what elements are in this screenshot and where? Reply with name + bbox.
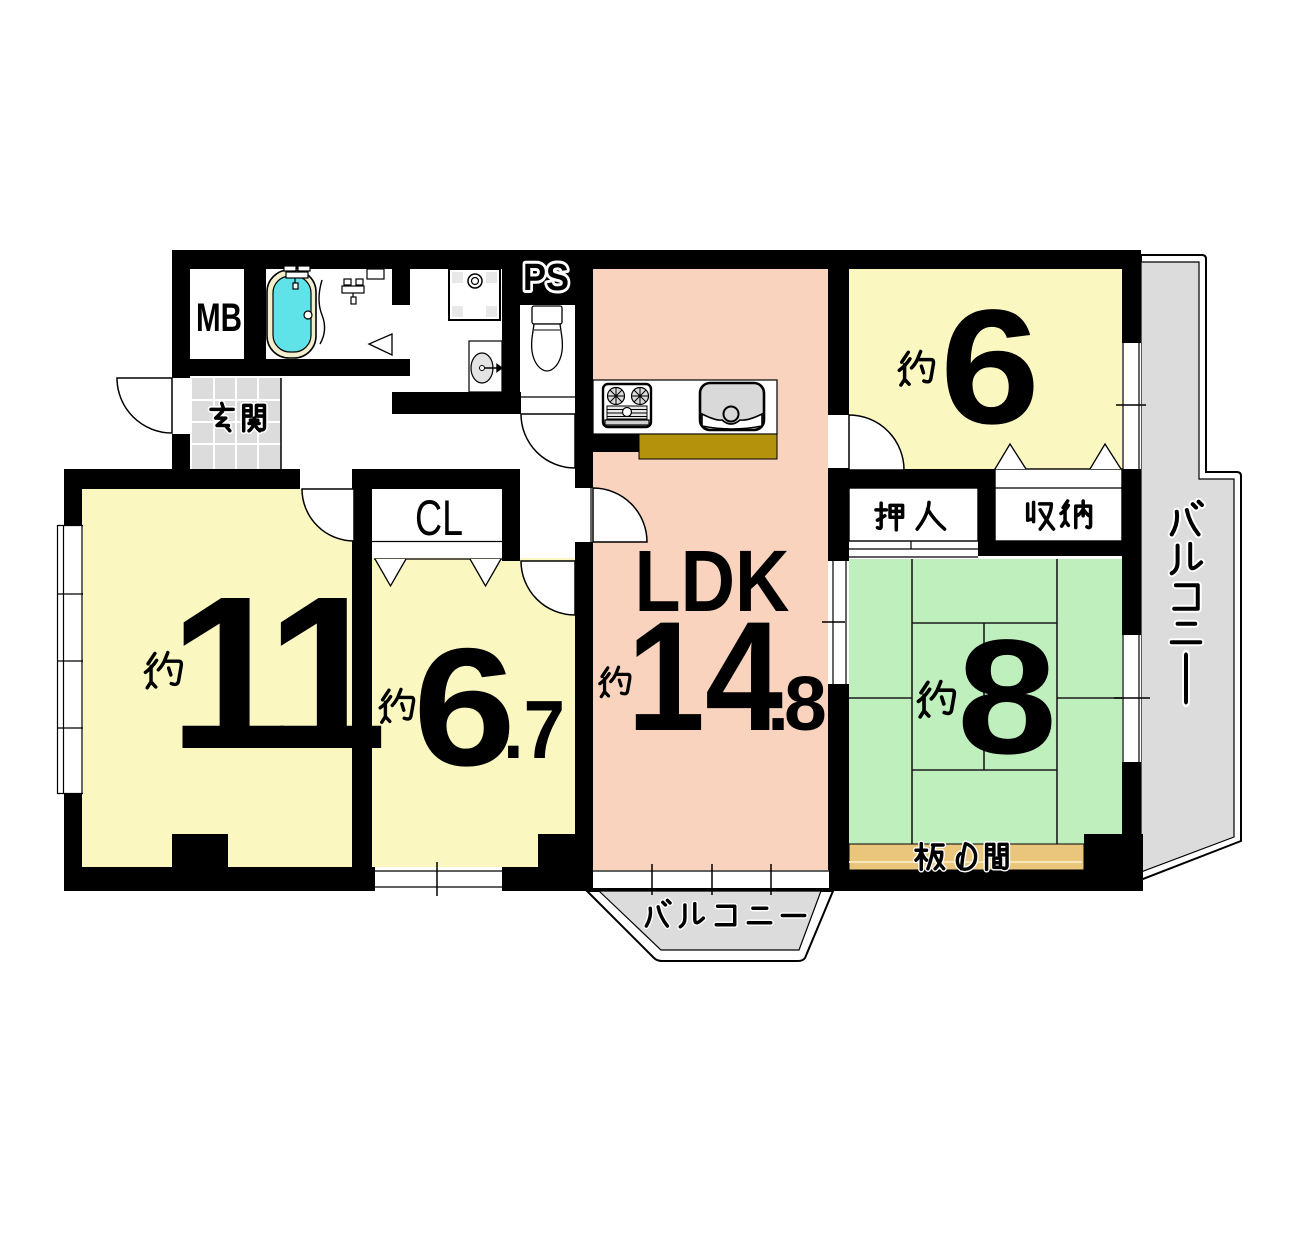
- svg-text:6: 6: [413, 613, 516, 801]
- svg-text:6: 6: [940, 275, 1040, 458]
- svg-text:11: 11: [169, 552, 382, 795]
- svg-text:CL: CL: [415, 490, 463, 546]
- svg-text:8: 8: [784, 661, 827, 747]
- svg-text:.7: .7: [503, 683, 565, 776]
- svg-text:PS: PS: [523, 257, 569, 299]
- svg-text:MB: MB: [196, 296, 242, 340]
- svg-text:8: 8: [957, 605, 1057, 788]
- svg-text:14: 14: [627, 590, 783, 764]
